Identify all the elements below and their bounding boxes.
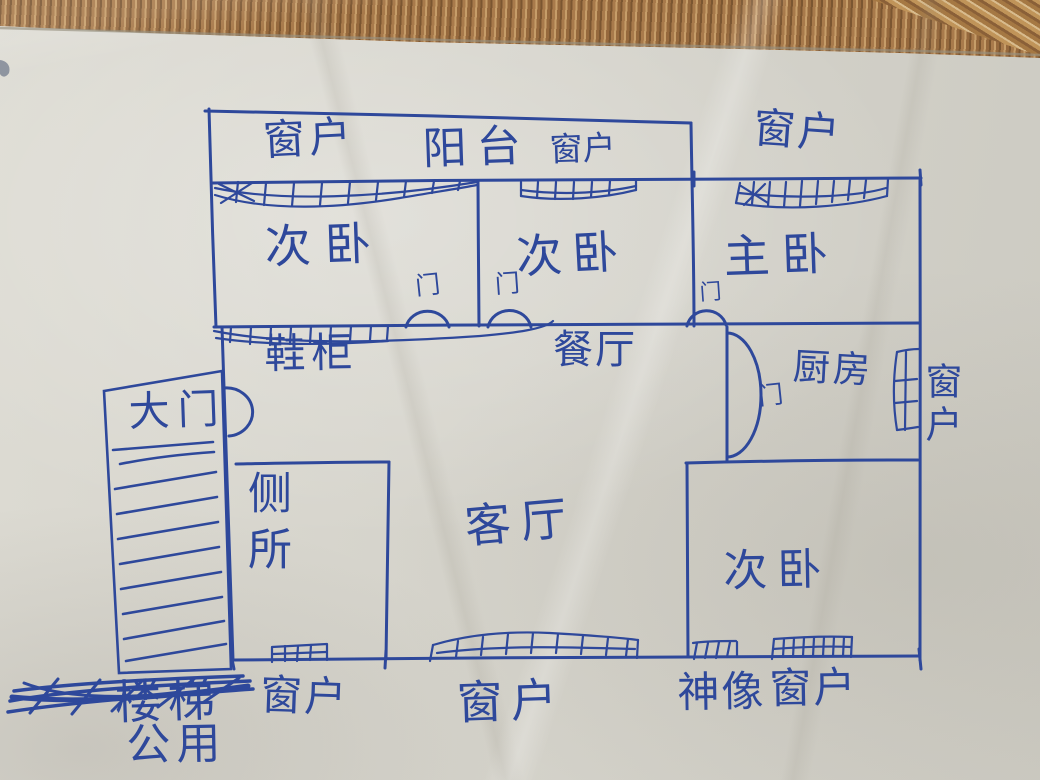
- shrine-label: 神像: [677, 670, 766, 714]
- room-label-bedroom-top-middle: 次卧: [515, 228, 629, 280]
- paper-edge-shadow: [0, 28, 1040, 55]
- staircase-treads: [115, 472, 226, 661]
- door-arc-main-entry: [224, 388, 253, 436]
- stairs-shared-label: 公用: [126, 722, 227, 768]
- window-label-kitchen: 窗户: [922, 362, 959, 448]
- door-label-master: 门: [699, 281, 722, 304]
- room-label-bedroom-bottom-right: 次卧: [723, 548, 832, 594]
- wall-bottom: [233, 656, 920, 660]
- paper-edge-mark: [0, 60, 10, 77]
- wall-toilet-right: [386, 462, 389, 659]
- wall-toilet-top: [236, 462, 389, 464]
- door-label-bedroom1: 门: [414, 271, 441, 298]
- window-symbol-master: [736, 179, 888, 207]
- window-label-top-right: 窗户: [752, 107, 843, 155]
- shoe-cabinet-label: 鞋柜: [264, 332, 359, 375]
- room-label-bedroom-top-left: 次卧: [264, 220, 386, 270]
- main-gate-underline-1: [113, 442, 213, 450]
- window-label-toilet: 窗户: [260, 674, 349, 719]
- window-label-top-middle: 窗户: [549, 131, 616, 166]
- room-label-master-bedroom: 主卧: [723, 230, 841, 280]
- wall-tick-bottom-right: [919, 649, 921, 669]
- room-label-toilet: 侧所: [243, 470, 287, 582]
- floor-plan-photo: 窗户 阳台 窗户 窗户 次卧 次卧 主卧 门 门 门 鞋柜 餐厅 厨房 门 窗户…: [0, 0, 1040, 780]
- door-label-bedroom2: 门: [494, 270, 521, 297]
- wall-bedrooms-top: [213, 178, 921, 183]
- main-gate-underline-2: [120, 452, 214, 464]
- wall-left-upper: [209, 109, 216, 327]
- door-label-kitchen: 门: [757, 381, 784, 408]
- wall-divider-bedroom1-bedroom2: [478, 182, 479, 326]
- balcony-label: 阳台: [422, 124, 531, 172]
- wall-tick-toilet-base: [385, 651, 386, 668]
- wall-tick-top-right: [920, 170, 921, 185]
- window-symbol-bedroom2: [521, 181, 636, 199]
- room-label-living: 客厅: [463, 494, 579, 550]
- wall-left-lower: [222, 327, 233, 660]
- room-label-kitchen: 厨房: [792, 348, 874, 389]
- window-symbol-kitchen: [894, 349, 919, 430]
- wall-divider-bedroom2-master: [691, 123, 694, 326]
- wall-kitchen-bottom: [686, 460, 918, 463]
- main-gate-label: 大门: [128, 389, 227, 433]
- window-label-living: 窗户: [456, 676, 566, 726]
- room-label-dining: 餐厅: [553, 330, 637, 370]
- wall-bedroom3-left: [687, 463, 688, 656]
- window-label-bedroom3: 窗户: [769, 666, 858, 710]
- window-label-top-left: 窗户: [262, 115, 356, 162]
- door-arc-kitchen: [727, 333, 761, 457]
- window-symbol-bedroom1: [215, 181, 477, 207]
